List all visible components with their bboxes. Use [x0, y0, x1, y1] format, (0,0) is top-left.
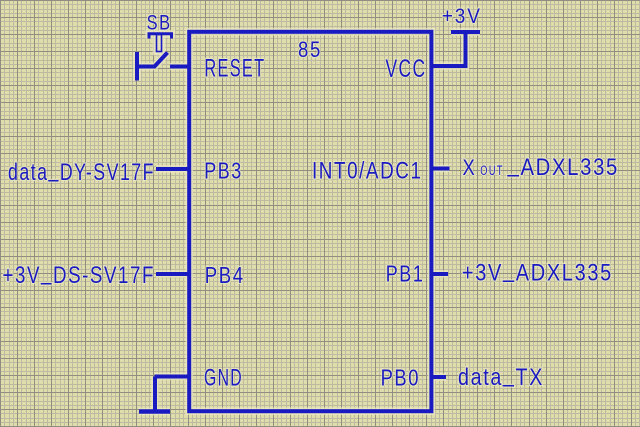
svg-text:GND: GND	[204, 365, 243, 392]
svg-text:+3V_DS-SV17F: +3V_DS-SV17F	[3, 259, 156, 290]
svg-text:data_DY-SV17F: data_DY-SV17F	[8, 156, 155, 187]
svg-text:PB0: PB0	[381, 365, 421, 391]
svg-text:_ADXL335: _ADXL335	[507, 151, 619, 182]
svg-text:data_TX: data_TX	[458, 361, 544, 392]
svg-text:VCC: VCC	[386, 55, 427, 83]
svg-text:PB3: PB3	[204, 158, 243, 184]
svg-text:PB4: PB4	[205, 262, 245, 288]
svg-text:SB: SB	[147, 11, 172, 35]
svg-text:85: 85	[298, 37, 322, 62]
svg-text:X: X	[463, 155, 477, 180]
svg-text:PB1: PB1	[386, 261, 425, 287]
svg-text:RESET: RESET	[204, 55, 265, 83]
svg-text:OUT: OUT	[480, 163, 504, 178]
svg-text:+3V: +3V	[442, 5, 482, 28]
svg-text:INT0/ADC1: INT0/ADC1	[312, 157, 423, 184]
svg-text:+3V_ADXL335: +3V_ADXL335	[462, 256, 613, 287]
